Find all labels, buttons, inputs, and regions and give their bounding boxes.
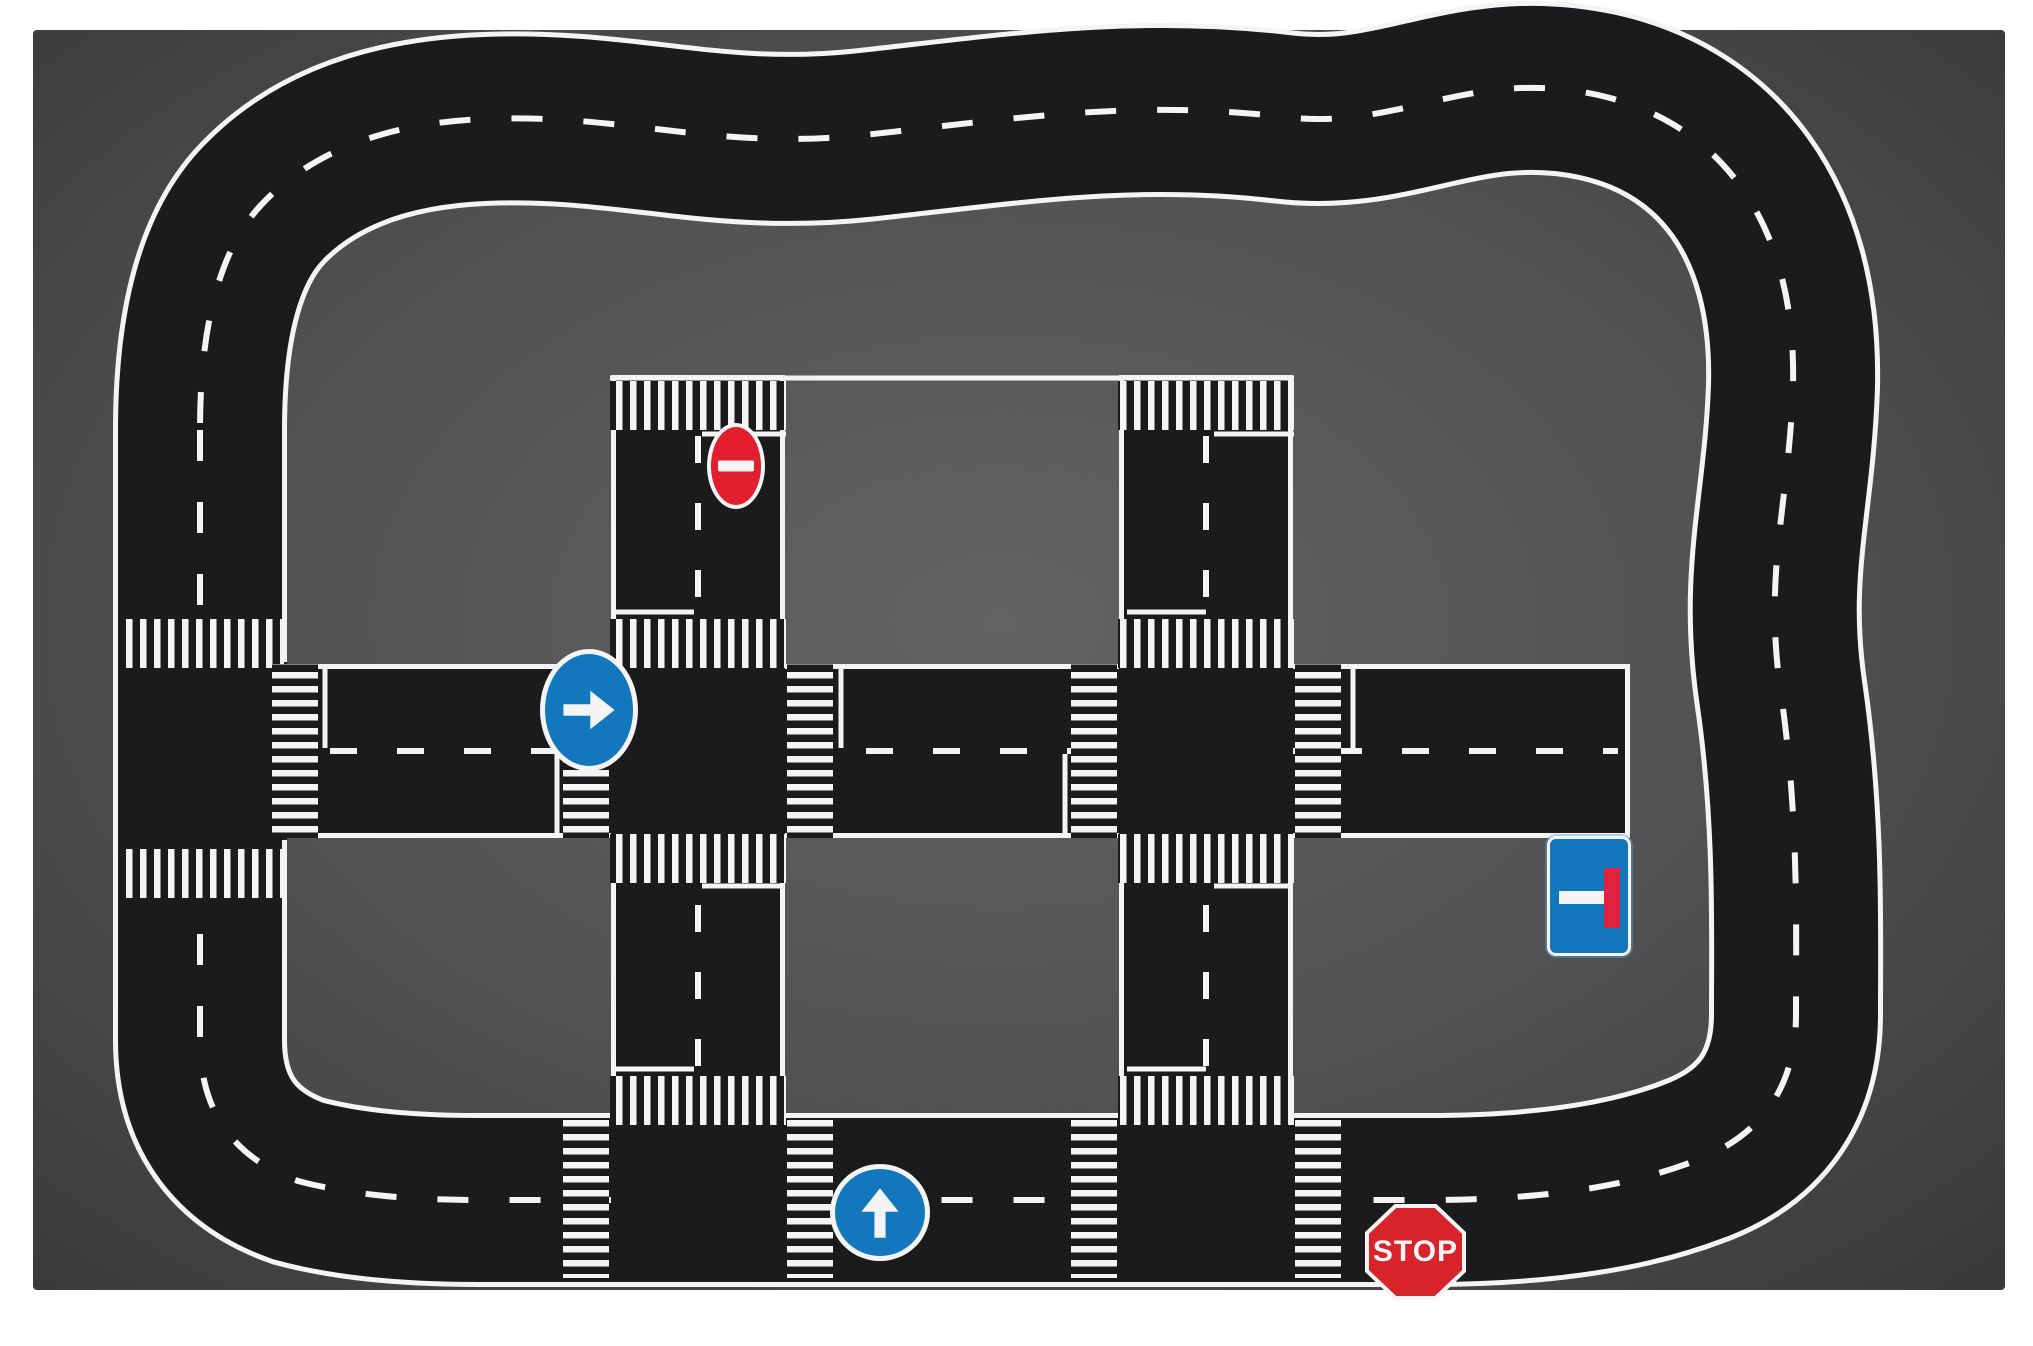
no-entry-bar-icon	[718, 461, 754, 472]
stop-sign-label: STOP	[1373, 1235, 1458, 1269]
arrow-right-icon	[557, 678, 621, 742]
stop-sign: STOP	[1365, 1204, 1466, 1300]
traffic-playmat: STOP	[0, 0, 2033, 1346]
turn-right-sign	[540, 649, 638, 771]
dead-end-sign	[1547, 836, 1631, 956]
no-entry-sign	[707, 423, 765, 509]
straight-ahead-sign	[830, 1164, 930, 1261]
road-network-svg	[0, 0, 2033, 1346]
arrow-up-icon	[849, 1182, 911, 1244]
dead-end-bar-icon	[1604, 868, 1620, 928]
dead-end-road-icon	[1559, 891, 1606, 904]
